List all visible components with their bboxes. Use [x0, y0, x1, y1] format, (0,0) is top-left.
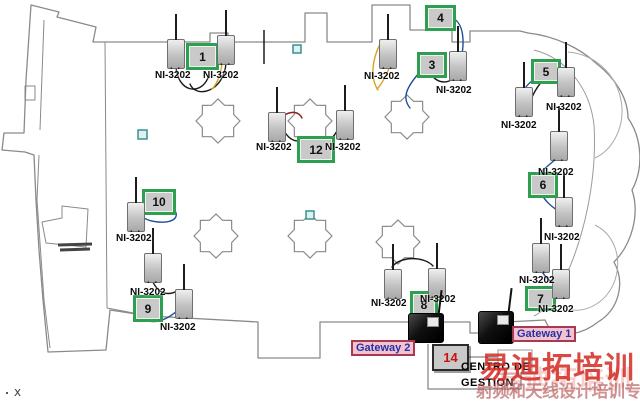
sensor-device	[555, 197, 573, 227]
gateway2-label: Gateway 2	[351, 340, 415, 356]
sensor-label: NI-3202	[501, 120, 537, 131]
sensor-device	[127, 202, 145, 232]
sensor-label: NI-3202	[544, 232, 580, 243]
node-number: 12	[309, 143, 322, 157]
sensor-label: NI-3202	[538, 167, 574, 178]
sensor-device	[515, 87, 533, 117]
sensor-label: NI-3202	[538, 304, 574, 315]
sensor-device	[550, 131, 568, 161]
node-number: 9	[145, 302, 152, 316]
sensor-label: NI-3202	[546, 102, 582, 113]
gateway1-label: Gateway 1	[512, 326, 576, 342]
sensor-label: NI-3202	[420, 294, 456, 305]
node-number: 1	[199, 50, 206, 64]
sensor-device	[384, 269, 402, 299]
sensor-label: NI-3202	[364, 71, 400, 82]
node-number: 5	[543, 65, 550, 79]
sensor-label: NI-3202	[519, 275, 555, 286]
sensor-device	[268, 112, 286, 142]
sensor-device	[167, 39, 185, 69]
sensor-label: NI-3202	[371, 298, 407, 309]
node-box-3: 3	[417, 52, 447, 78]
node-box-1: 1	[186, 43, 219, 70]
sensor-device	[144, 253, 162, 283]
node-number: 4	[437, 11, 444, 25]
sensor-label: NI-3202	[160, 322, 196, 333]
pillar-columns	[194, 95, 429, 264]
axis-marker: x	[14, 385, 21, 399]
node-number: 3	[429, 58, 436, 72]
sensor-device	[557, 67, 575, 97]
sensor-label: NI-3202	[436, 85, 472, 96]
sensor-device	[379, 39, 397, 69]
gateway-device-2	[408, 313, 444, 343]
sensor-label: NI-3202	[116, 233, 152, 244]
node-number: 10	[152, 195, 165, 209]
sensor-device	[336, 110, 354, 140]
sensor-device	[449, 51, 467, 81]
sensor-label: NI-3202	[203, 70, 239, 81]
node-number: 14	[443, 350, 457, 365]
sensor-label: NI-3202	[325, 142, 361, 153]
sensor-device	[175, 289, 193, 319]
node-number: 6	[540, 178, 547, 192]
node-box-10: 10	[142, 189, 176, 215]
sensor-device	[217, 35, 235, 65]
node-box-9: 9	[133, 295, 163, 322]
watermark-subtitle: 射频和天线设计培训专家	[476, 377, 640, 401]
gateway-device-1	[478, 311, 514, 344]
sensor-device	[532, 243, 550, 273]
sensor-label: NI-3202	[155, 70, 191, 81]
sensor-label: NI-3202	[130, 287, 166, 298]
node-box-4: 4	[425, 5, 456, 31]
cathedral-wsn-deployment-diagram: 1 3 4 5 6 7 8 9 10 12 14 NI-3202 NI-3202…	[0, 0, 640, 401]
sensor-label: NI-3202	[256, 142, 292, 153]
